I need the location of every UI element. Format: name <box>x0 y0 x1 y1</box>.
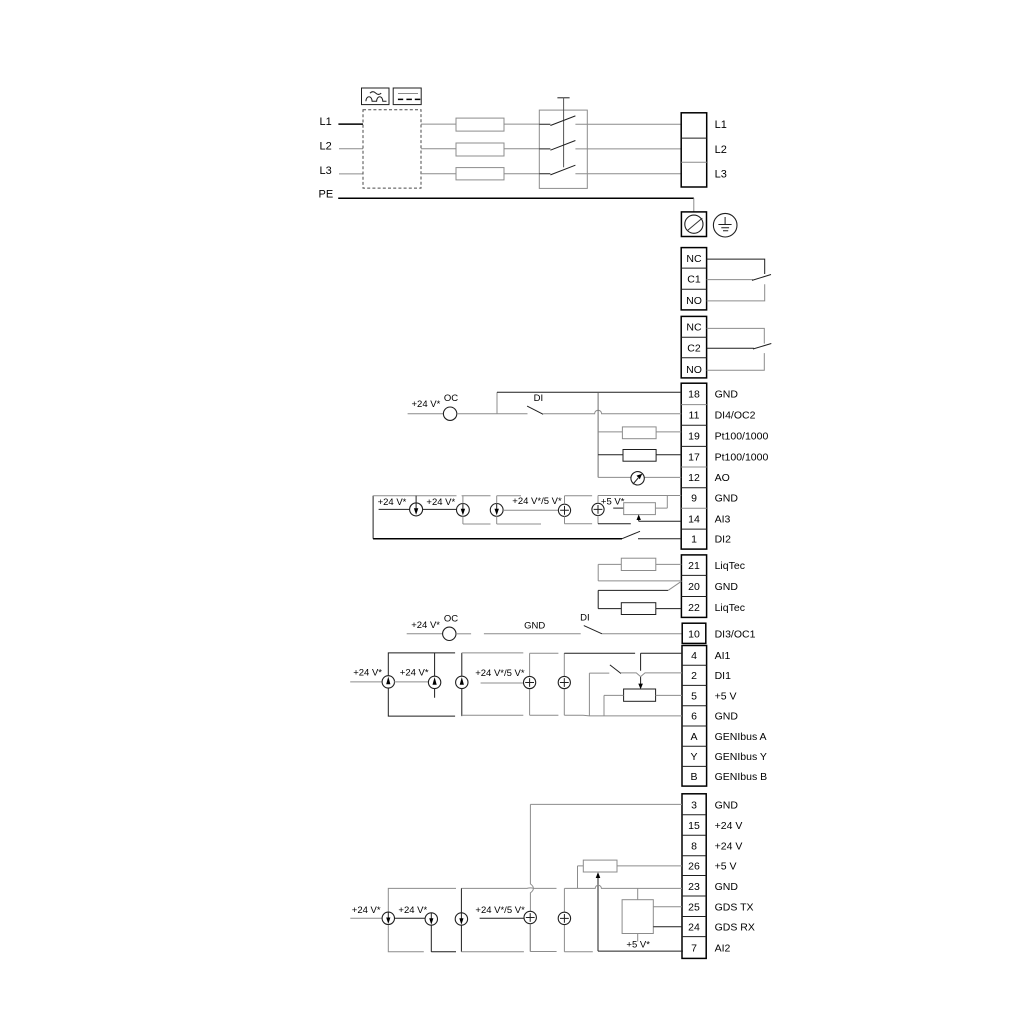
svg-text:+24 V*/5 V*: +24 V*/5 V* <box>475 668 525 679</box>
svg-text:L3: L3 <box>715 169 727 181</box>
svg-text:19: 19 <box>688 430 700 442</box>
svg-text:L3: L3 <box>320 165 332 177</box>
svg-text:GDS RX: GDS RX <box>715 922 755 934</box>
svg-text:22: 22 <box>688 602 700 614</box>
svg-text:NC: NC <box>686 253 702 265</box>
svg-text:6: 6 <box>691 711 697 723</box>
svg-text:20: 20 <box>688 581 700 593</box>
svg-text:DI1: DI1 <box>715 670 732 682</box>
svg-text:L1: L1 <box>715 119 727 131</box>
svg-text:LiqTec: LiqTec <box>715 560 745 572</box>
svg-text:AI2: AI2 <box>715 943 731 955</box>
svg-text:B: B <box>690 771 697 783</box>
svg-text:+5 V: +5 V <box>715 861 737 873</box>
svg-text:NO: NO <box>686 295 702 307</box>
svg-text:+24 V: +24 V <box>715 841 743 853</box>
svg-text:24: 24 <box>688 922 700 934</box>
svg-text:GENIbus Y: GENIbus Y <box>715 751 767 763</box>
svg-text:9: 9 <box>691 493 697 505</box>
svg-text:GENIbus A: GENIbus A <box>715 731 767 743</box>
svg-text:8: 8 <box>691 841 697 853</box>
svg-text:+24 V: +24 V <box>715 820 743 832</box>
svg-text:AI1: AI1 <box>715 650 731 662</box>
svg-text:+24 V*: +24 V* <box>353 668 382 679</box>
svg-text:C1: C1 <box>687 274 701 286</box>
svg-text:+24 V*: +24 V* <box>412 399 441 410</box>
svg-text:DI: DI <box>580 613 590 624</box>
svg-text:14: 14 <box>688 513 700 525</box>
svg-text:GND: GND <box>715 581 739 593</box>
svg-text:15: 15 <box>688 820 700 832</box>
svg-text:GND: GND <box>524 620 545 631</box>
svg-text:5: 5 <box>691 690 697 702</box>
svg-text:DI3/OC1: DI3/OC1 <box>715 628 756 640</box>
svg-text:LiqTec: LiqTec <box>715 602 745 614</box>
svg-text:+24 V*: +24 V* <box>411 620 440 631</box>
svg-text:L2: L2 <box>715 144 727 156</box>
svg-text:OC: OC <box>444 613 458 624</box>
svg-text:25: 25 <box>688 901 700 913</box>
svg-text:GND: GND <box>715 389 739 401</box>
svg-text:AI3: AI3 <box>715 513 731 525</box>
svg-text:DI: DI <box>534 393 544 404</box>
svg-text:Y: Y <box>690 751 697 763</box>
svg-text:26: 26 <box>688 861 700 873</box>
svg-text:GND: GND <box>715 493 739 505</box>
svg-text:23: 23 <box>688 881 700 893</box>
svg-text:C2: C2 <box>687 343 701 355</box>
svg-text:4: 4 <box>691 650 697 662</box>
svg-text:L2: L2 <box>320 141 332 153</box>
svg-text:DI4/OC2: DI4/OC2 <box>715 409 756 421</box>
svg-text:11: 11 <box>689 409 700 421</box>
svg-text:GND: GND <box>715 711 739 723</box>
svg-text:GND: GND <box>715 881 739 893</box>
svg-text:21: 21 <box>688 560 700 572</box>
svg-text:1: 1 <box>691 534 697 546</box>
svg-text:+24 V*: +24 V* <box>398 905 427 916</box>
svg-text:+24 V*: +24 V* <box>378 497 407 508</box>
svg-text:17: 17 <box>688 451 700 463</box>
svg-text:18: 18 <box>688 389 700 401</box>
svg-text:10: 10 <box>688 628 700 640</box>
svg-text:+5 V*: +5 V* <box>626 940 650 951</box>
svg-text:L1: L1 <box>320 116 332 128</box>
svg-text:+5 V*: +5 V* <box>601 497 625 508</box>
svg-text:Pt100/1000: Pt100/1000 <box>715 430 769 442</box>
svg-text:12: 12 <box>688 472 700 484</box>
svg-text:+24 V*: +24 V* <box>352 905 381 916</box>
svg-text:GDS TX: GDS TX <box>715 901 754 913</box>
svg-text:AO: AO <box>715 472 730 484</box>
svg-text:+24 V*/5 V*: +24 V*/5 V* <box>475 905 525 916</box>
svg-text:GND: GND <box>715 800 739 812</box>
svg-text:+5 V: +5 V <box>715 690 737 702</box>
svg-text:2: 2 <box>691 670 697 682</box>
svg-text:7: 7 <box>691 943 697 955</box>
svg-text:OC: OC <box>444 393 458 404</box>
svg-text:3: 3 <box>691 800 697 812</box>
svg-text:NC: NC <box>686 322 702 334</box>
svg-text:PE: PE <box>319 189 334 201</box>
svg-text:GENIbus B: GENIbus B <box>715 771 768 783</box>
svg-text:NO: NO <box>686 364 702 376</box>
svg-text:A: A <box>690 731 697 743</box>
svg-text:+24 V*/5 V*: +24 V*/5 V* <box>512 496 562 507</box>
svg-text:Pt100/1000: Pt100/1000 <box>715 451 769 463</box>
svg-text:+24 V*: +24 V* <box>400 668 429 679</box>
svg-text:DI2: DI2 <box>715 534 732 546</box>
svg-text:+24 V*: +24 V* <box>426 497 455 508</box>
